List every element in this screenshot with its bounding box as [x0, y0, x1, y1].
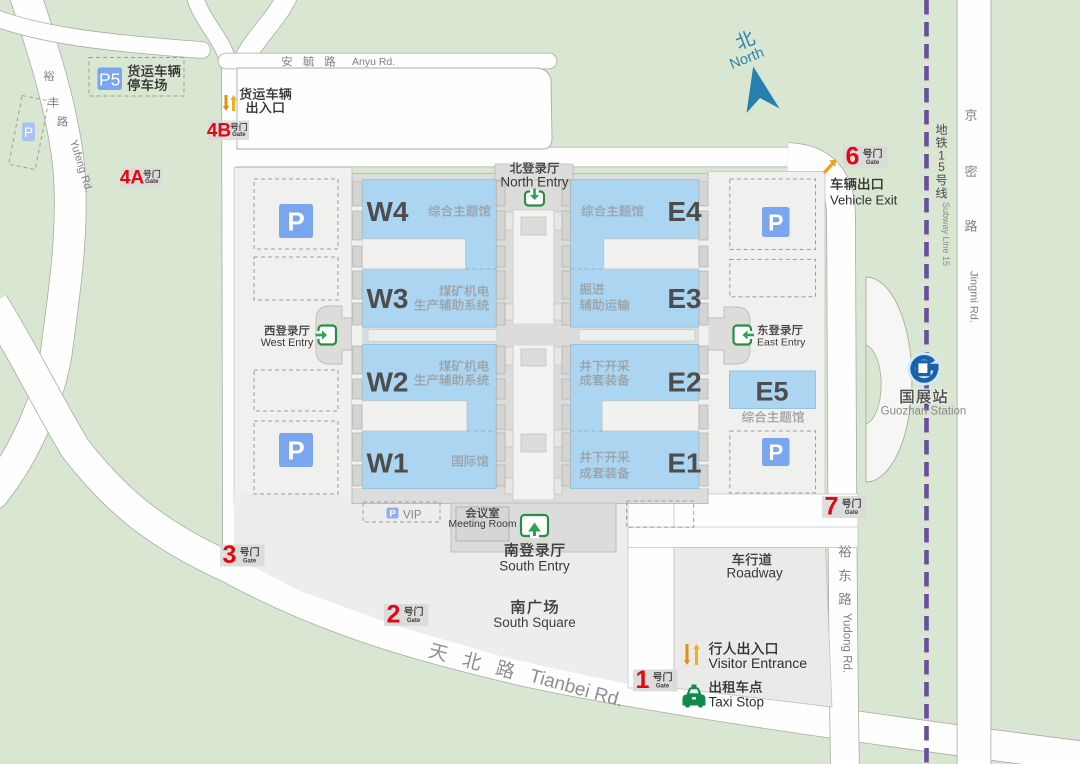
svg-text:Visitor Entrance: Visitor Entrance: [709, 655, 808, 671]
svg-text:P: P: [768, 209, 783, 235]
svg-text:E4: E4: [667, 196, 702, 227]
svg-text:West Entry: West Entry: [261, 337, 314, 349]
svg-text:5: 5: [938, 160, 945, 174]
svg-text:E1: E1: [667, 448, 701, 479]
svg-text:VIP: VIP: [403, 510, 422, 522]
svg-text:E3: E3: [667, 283, 701, 314]
svg-text:Jingmi Rd.: Jingmi Rd.: [968, 271, 980, 323]
svg-text:W1: W1: [367, 448, 409, 479]
svg-text:W4: W4: [367, 196, 409, 227]
svg-text:2: 2: [387, 600, 401, 628]
svg-text:E2: E2: [667, 367, 701, 398]
svg-text:East Entry: East Entry: [757, 337, 806, 349]
svg-text:7: 7: [825, 492, 839, 520]
svg-text:Gate: Gate: [232, 132, 246, 138]
svg-text:Anyu Rd.: Anyu Rd.: [352, 56, 395, 68]
svg-text:Guozhan Station: Guozhan Station: [881, 406, 967, 418]
svg-text:Gate: Gate: [407, 618, 421, 624]
svg-text:P: P: [287, 206, 304, 236]
svg-text:W3: W3: [367, 283, 409, 314]
svg-text:1: 1: [636, 666, 650, 694]
svg-text:Meeting Room: Meeting Room: [448, 518, 517, 530]
svg-text:3: 3: [223, 541, 237, 569]
svg-text:Yudong Rd.: Yudong Rd.: [841, 613, 853, 673]
svg-text:Gate: Gate: [145, 179, 159, 185]
svg-text:Roadway: Roadway: [727, 566, 784, 581]
svg-text:Vehicle Exit: Vehicle Exit: [830, 193, 898, 208]
svg-text:P: P: [24, 124, 33, 140]
svg-text:Gate: Gate: [866, 160, 880, 166]
svg-text:South Square: South Square: [493, 615, 576, 630]
svg-text:Gate: Gate: [656, 684, 670, 690]
svg-text:E5: E5: [755, 377, 788, 407]
svg-text:P: P: [287, 435, 304, 465]
svg-text:Taxi Stop: Taxi Stop: [709, 695, 765, 710]
svg-text:Subway Line 15: Subway Line 15: [941, 202, 951, 266]
svg-text:W2: W2: [367, 367, 409, 398]
svg-text:4B: 4B: [207, 121, 231, 142]
svg-text:6: 6: [846, 142, 860, 170]
svg-text:P: P: [768, 440, 783, 465]
svg-text:South Entry: South Entry: [499, 559, 570, 574]
svg-text:P: P: [389, 509, 396, 520]
svg-text:Gate: Gate: [845, 510, 859, 516]
svg-text:Gate: Gate: [243, 559, 257, 565]
svg-text:P5: P5: [99, 70, 120, 90]
svg-text:North Entry: North Entry: [500, 175, 569, 190]
svg-text:4A: 4A: [120, 168, 145, 189]
